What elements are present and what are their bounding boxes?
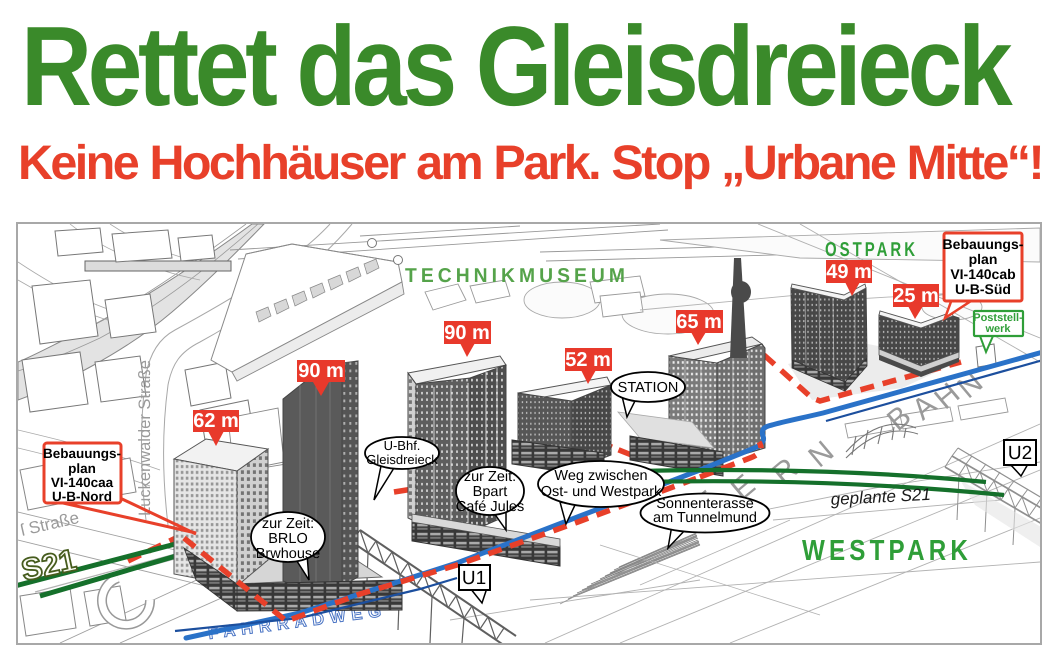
svg-text:BRLO: BRLO xyxy=(268,531,308,547)
svg-text:Keine Hochhäuser am Park. Stop: Keine Hochhäuser am Park. Stop „Urbane M… xyxy=(18,136,1042,190)
svg-text:zur Zeit:: zur Zeit: xyxy=(464,469,516,485)
svg-text:65 m: 65 m xyxy=(676,311,722,333)
svg-text:STATION: STATION xyxy=(618,380,679,396)
svg-text:zur Zeit:: zur Zeit: xyxy=(262,516,314,532)
svg-text:OSTPARK: OSTPARK xyxy=(825,239,918,261)
svg-text:U-B-Süd: U-B-Süd xyxy=(955,281,1011,297)
svg-text:VI-140caa: VI-140caa xyxy=(51,475,114,490)
svg-text:am Tunnelmund: am Tunnelmund xyxy=(653,510,757,526)
svg-text:25 m: 25 m xyxy=(893,285,939,307)
svg-text:werk: werk xyxy=(984,323,1011,335)
svg-text:VI-140cab: VI-140cab xyxy=(950,266,1015,282)
svg-text:TECHNIKMUSEUM: TECHNIKMUSEUM xyxy=(405,265,629,287)
svg-text:Weg zwischen: Weg zwischen xyxy=(554,468,647,484)
svg-text:Café Jules: Café Jules xyxy=(456,499,525,515)
svg-text:Luckenwalder Straße: Luckenwalder Straße xyxy=(136,360,154,516)
svg-text:plan: plan xyxy=(68,461,96,476)
svg-text:U2: U2 xyxy=(1008,443,1032,464)
svg-text:49 m: 49 m xyxy=(826,261,872,283)
svg-text:Bebauungs-: Bebauungs- xyxy=(43,446,121,461)
svg-text:Gleisdreieck: Gleisdreieck xyxy=(366,452,438,467)
svg-text:90 m: 90 m xyxy=(298,360,344,382)
svg-text:Rettet das Gleisdreieck: Rettet das Gleisdreieck xyxy=(21,3,1013,129)
svg-text:90 m: 90 m xyxy=(444,322,490,344)
svg-text:52 m: 52 m xyxy=(565,349,611,371)
svg-text:U-B-Nord: U-B-Nord xyxy=(52,489,112,504)
svg-text:WESTPARK: WESTPARK xyxy=(802,535,972,567)
svg-text:U1: U1 xyxy=(462,568,486,589)
svg-text:Brwhouse: Brwhouse xyxy=(256,546,320,562)
svg-text:plan: plan xyxy=(969,251,998,267)
svg-text:Ost- und Westpark: Ost- und Westpark xyxy=(541,484,662,500)
svg-text:Bpart: Bpart xyxy=(473,484,508,500)
svg-text:Bebauungs-: Bebauungs- xyxy=(943,236,1024,252)
svg-text:62 m: 62 m xyxy=(193,410,239,432)
svg-text:U-Bhf.: U-Bhf. xyxy=(384,438,421,453)
